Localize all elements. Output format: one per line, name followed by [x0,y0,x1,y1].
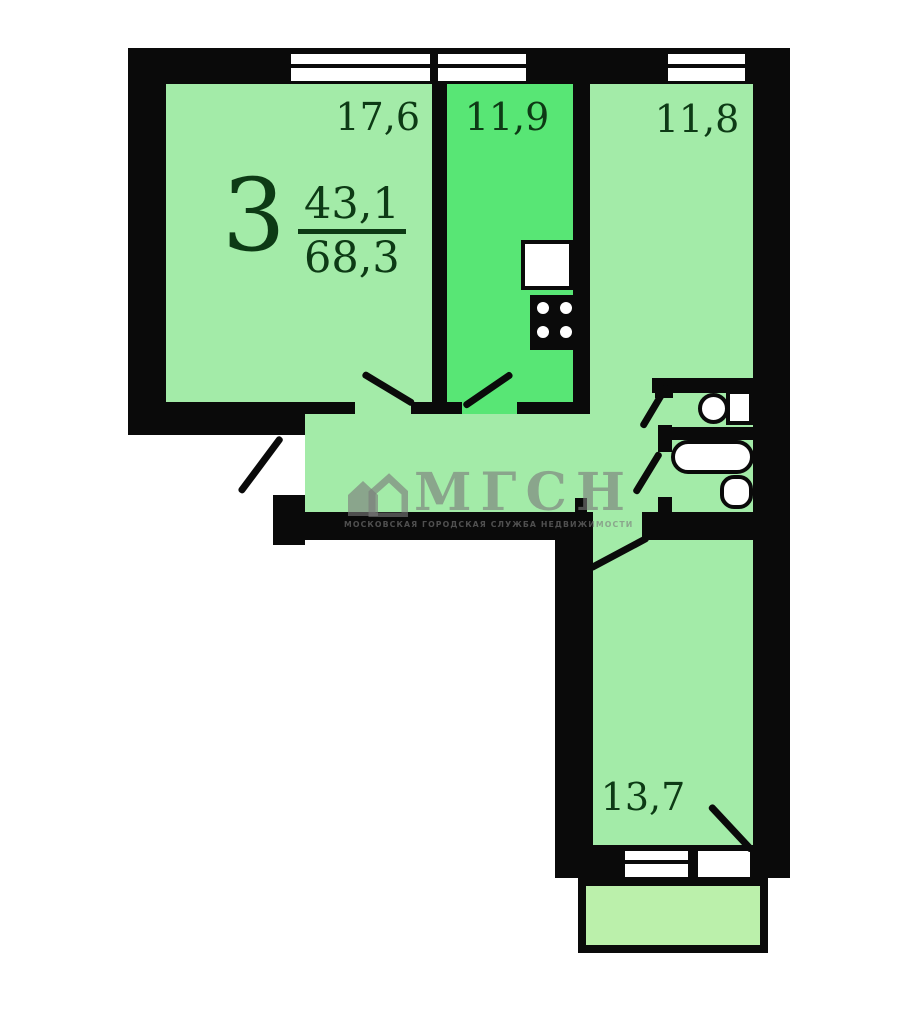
bath-sink-icon [720,475,753,509]
kitchen-area-label: 11,9 [452,98,562,136]
bedroom-bottom-window [625,851,688,877]
living-room-bottom-wall [162,402,355,414]
divider-end-stub [658,425,672,452]
outer-wall-left [128,48,166,408]
rooms-count-label: 3 [222,166,286,266]
door-frame-stub-center [411,402,462,414]
toilet-bowl-icon [698,393,729,424]
window-pane-line [438,64,526,68]
balcony-floor [586,886,760,945]
stove-burner-icon [558,300,574,316]
living-room-door-gap [355,400,411,414]
living-room-window [291,54,430,81]
bathtub-icon [671,440,754,474]
entrance-door-swing [237,435,284,495]
watermark-subtitle: МОСКОВСКАЯ ГОРОДСКАЯ СЛУЖБА НЕДВИЖИМОСТИ [344,520,634,529]
toilet-tank-icon [726,390,753,425]
corridor-bottom-wall-right [642,512,790,540]
outer-wall-right [753,48,790,878]
bath-door-hinge-stub [658,497,672,512]
watermark: МГСН МОСКОВСКАЯ ГОРОДСКАЯ СЛУЖБА НЕДВИЖИ… [344,468,634,529]
bedroom-top-area-label: 11,8 [642,100,752,138]
stove-burner-icon [535,300,551,316]
window-pane-line [668,64,745,68]
wc-bath-divider [658,427,755,440]
window-pane-line [625,860,688,864]
stove-burner-icon [558,324,574,340]
area-fraction: 43,1 68,3 [298,182,406,281]
stove-icon [530,295,583,350]
bedroom-bottom-area-label: 13,7 [588,778,698,816]
stove-burner-icon [535,324,551,340]
kitchen-bottom-wall [517,402,590,414]
kitchen-window [438,54,526,81]
wall-living-kitchen [432,84,447,414]
wall-kitchen-bedroom [573,84,590,414]
bedroom-top-window [668,54,745,81]
total-area-value: 68,3 [298,234,406,281]
window-pane-line [291,64,430,68]
balcony-door-opening [698,851,750,877]
watermark-logo-text: МГСН [414,468,634,517]
living-area-value: 43,1 [298,182,406,234]
kitchen-sink-icon [521,240,573,290]
floorplan-canvas: 17,6 11,9 11,8 13,7 3 43,1 68,3 МГСН МОС… [0,0,909,1024]
mgsn-house-logo-icon [344,471,408,517]
living-room-area-label: 17,6 [320,98,420,136]
bottom-room-left-wall [555,512,593,878]
